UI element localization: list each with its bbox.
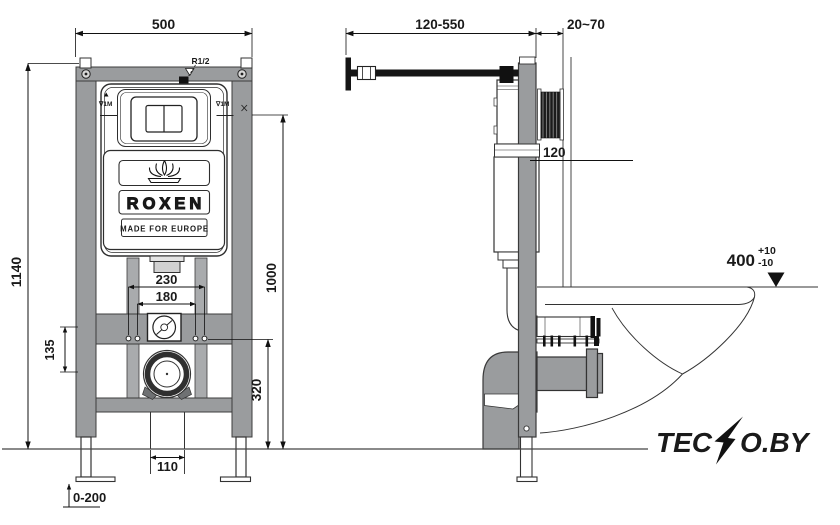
- lightning-bolt-icon: [715, 417, 744, 465]
- dim-400-tol-minus: -10: [758, 257, 773, 269]
- dim-135-label: 135: [43, 340, 57, 361]
- dim-20-70: 20~70: [536, 17, 605, 34]
- flush-connector: [537, 316, 601, 338]
- dim-500-label: 500: [152, 16, 176, 32]
- wall-tab-left: [80, 58, 91, 68]
- brand-name: ROXEN: [127, 195, 206, 213]
- water-mark-label: ∇1M: [98, 100, 112, 108]
- frame-bottom-rail: [76, 398, 252, 412]
- drain-socket: [143, 351, 192, 400]
- wall-bracket-arm: [346, 58, 519, 91]
- tecno-by-watermark: TEC O.BY: [656, 417, 811, 465]
- dim-500: 500: [76, 16, 253, 57]
- dim-0-200: 0-200: [63, 484, 106, 507]
- installation-frame-drawing: ∇1M ∇1M ROXEN MADE FOR EUROPE: [0, 0, 840, 525]
- front-view: ∇1M ∇1M ROXEN MADE FOR EUROPE: [76, 58, 252, 482]
- dimensions-side: 120-550 20~70 120 400 +10 -10: [346, 17, 785, 287]
- flush-bend-neck: [150, 256, 184, 273]
- technical-drawing: ∇1M ∇1M ROXEN MADE FOR EUROPE: [0, 0, 840, 525]
- adjustable-foot-side: [517, 437, 537, 482]
- dim-400: 400 +10 -10: [727, 245, 785, 287]
- tank-flange: [495, 144, 540, 157]
- flush-elbow-fitting: [148, 314, 182, 342]
- dim-1140-label: 1140: [8, 257, 24, 288]
- brand-tagline: MADE FOR EUROPE: [120, 225, 209, 234]
- wall-anchor-block: [538, 89, 564, 140]
- dim-20-70-label: 20~70: [567, 17, 605, 32]
- dim-110-label: 110: [157, 459, 178, 474]
- drain-connector: [537, 349, 603, 398]
- dim-180-label: 180: [156, 289, 178, 304]
- frame-left-rail: [76, 67, 96, 437]
- watermark-text-right: O.BY: [740, 427, 811, 458]
- dim-120: 120: [530, 145, 633, 161]
- inlet-label: R1/2: [192, 56, 210, 66]
- dim-120-label: 120: [543, 145, 566, 160]
- dim-135: 135: [43, 327, 78, 372]
- brand-panel: ROXEN MADE FOR EUROPE: [104, 151, 225, 250]
- dim-1000-label: 1000: [264, 263, 279, 293]
- frame-top-rail: [76, 67, 252, 81]
- crown-box: [119, 161, 210, 186]
- water-mark-label: ∇1M: [215, 100, 229, 108]
- dim-0-200-label: 0-200: [73, 490, 106, 505]
- dim-1140: 1140: [8, 64, 79, 450]
- dim-400-label: 400: [727, 251, 755, 270]
- watermark-text-left: TEC: [656, 427, 713, 458]
- dim-120-550: 120-550: [346, 17, 536, 58]
- dim-230-label: 230: [156, 272, 178, 287]
- dim-320-label: 320: [249, 379, 264, 402]
- dim-110: 110: [151, 450, 185, 474]
- dim-400-tol-plus: +10: [758, 245, 776, 257]
- mounting-rod: [537, 336, 599, 347]
- frame-column-side: [519, 57, 537, 437]
- dim-120-550-label: 120-550: [415, 17, 465, 32]
- wall-tab-right: [241, 58, 252, 68]
- drain-outlet: [151, 412, 185, 449]
